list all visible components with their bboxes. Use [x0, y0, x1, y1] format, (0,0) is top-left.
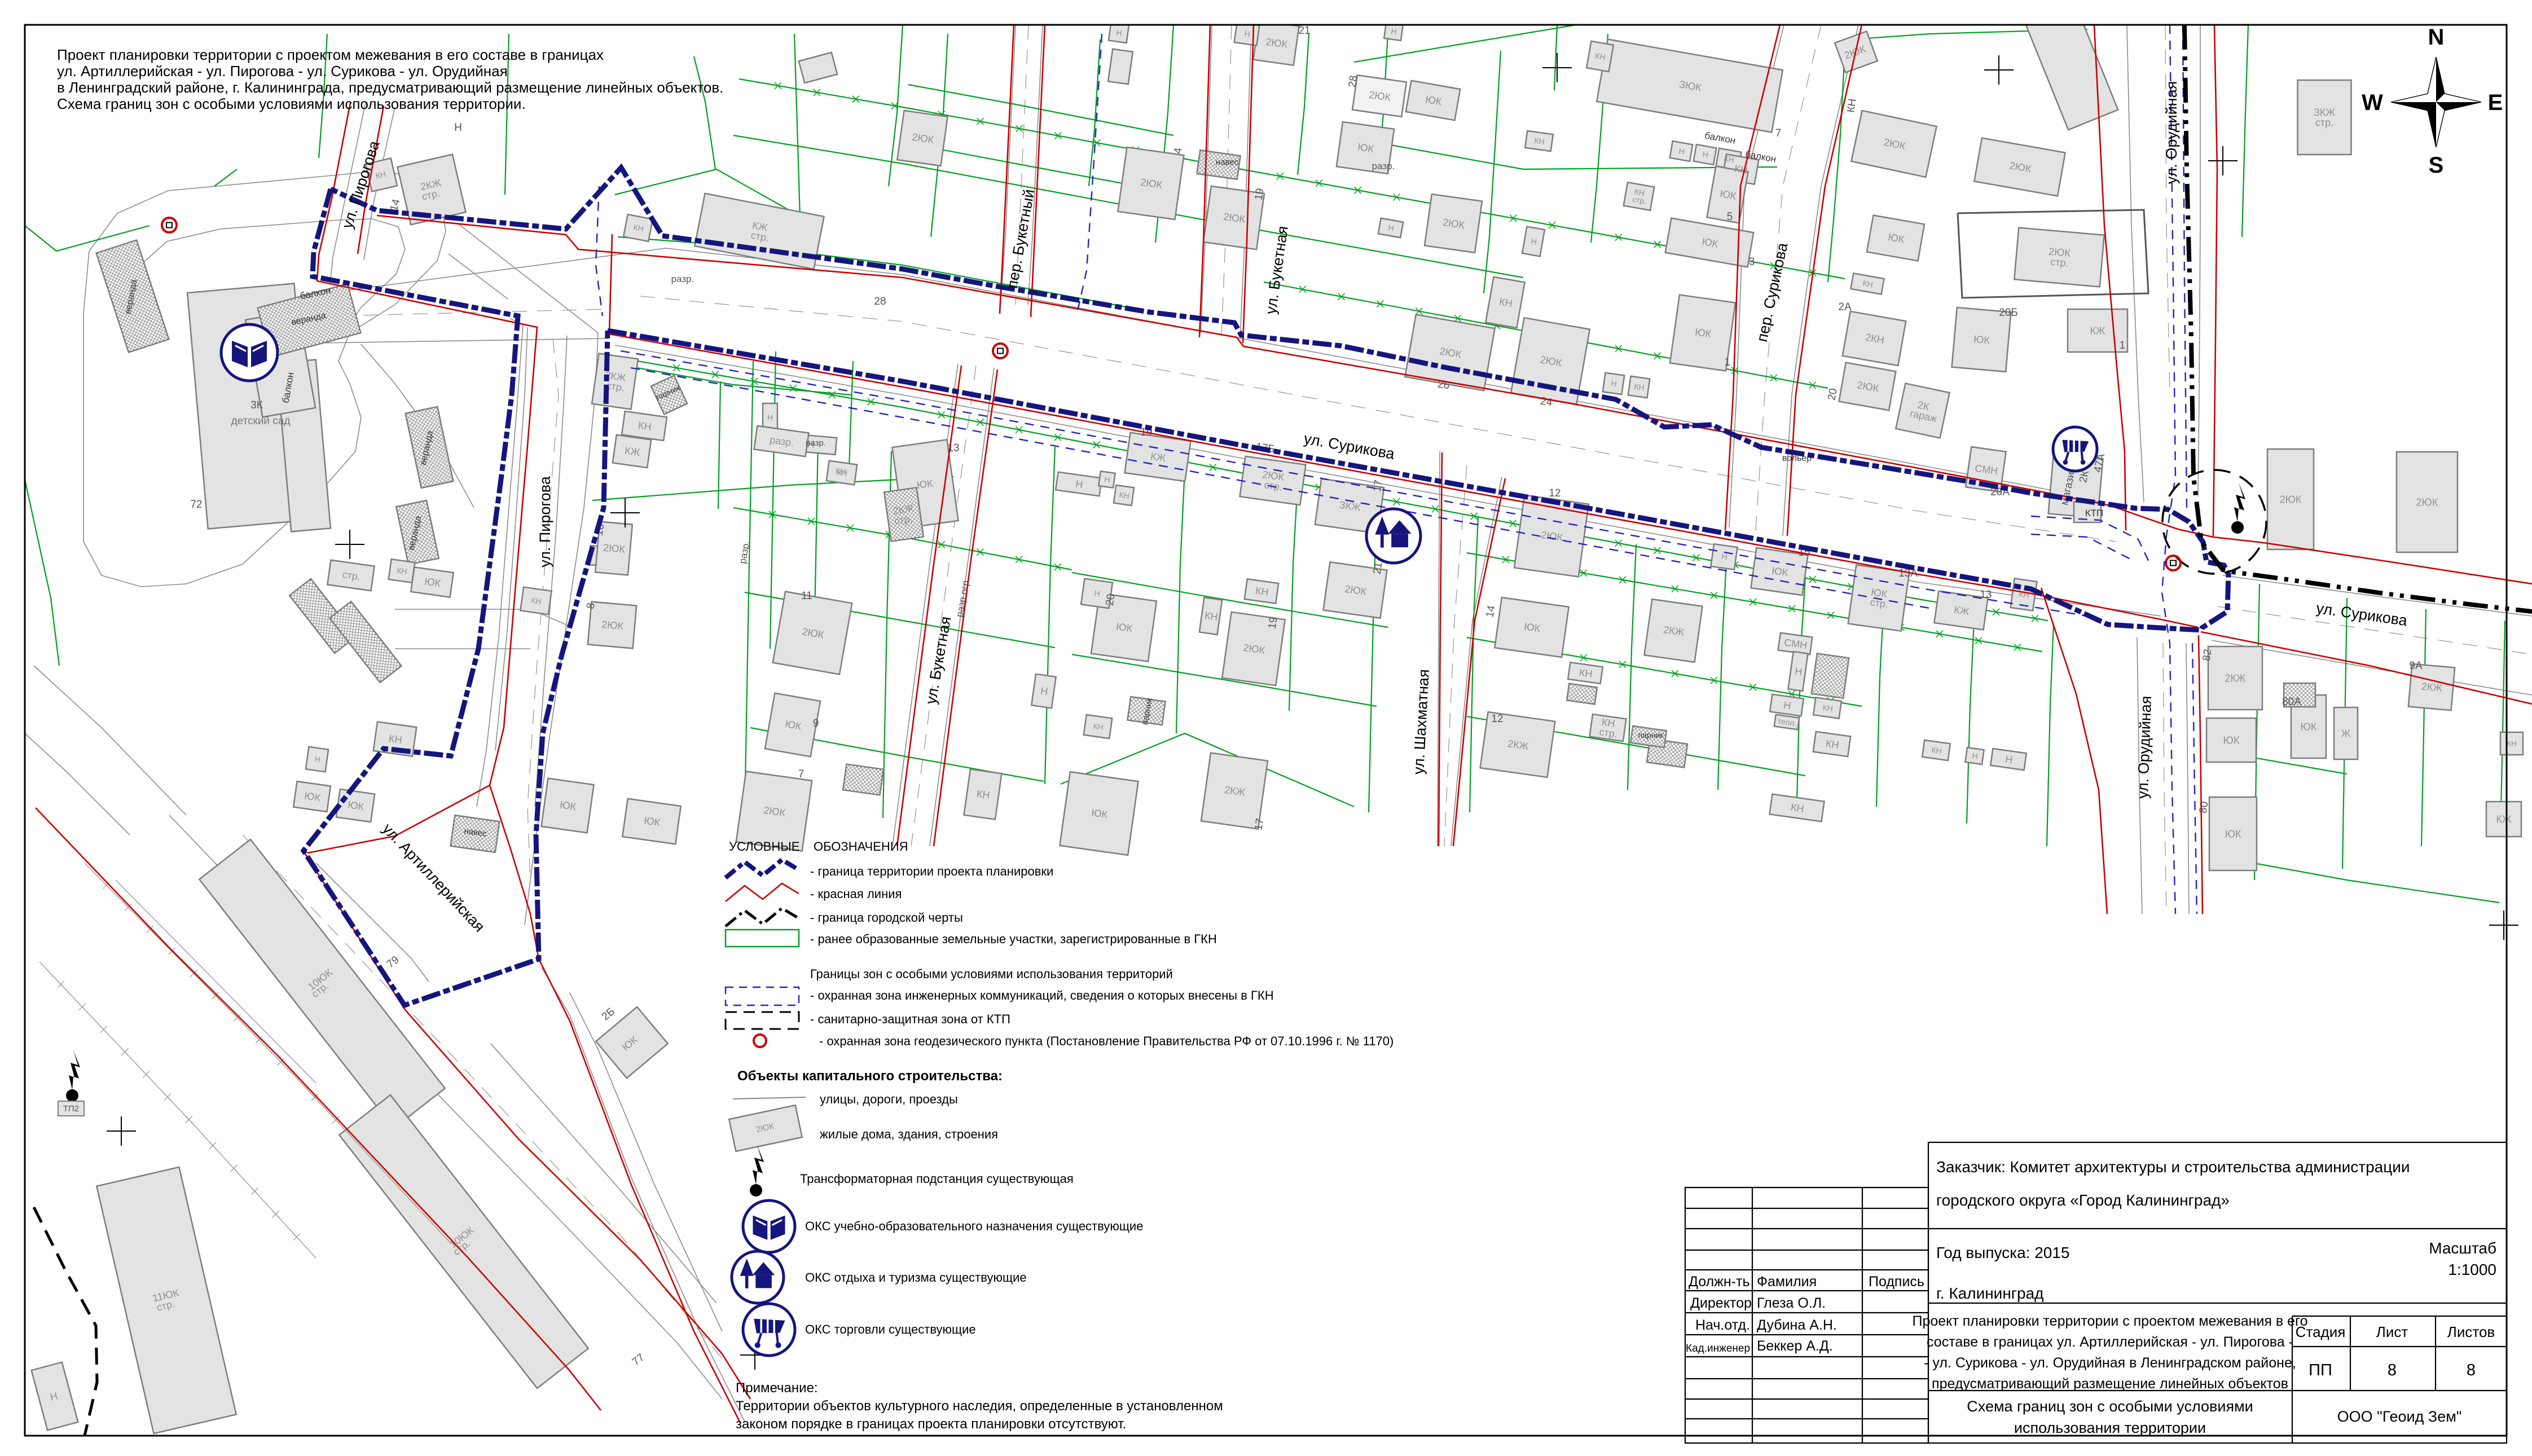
svg-text:Схема границ зон с особыми усл: Схема границ зон с особыми условиями — [1967, 1398, 2253, 1415]
svg-text:20: 20 — [1826, 388, 1839, 401]
svg-text:Трансформаторная подстанция су: Трансформаторная подстанция существующая — [800, 1172, 1074, 1186]
svg-text:КЖ: КЖ — [2090, 325, 2105, 336]
svg-text:улицы, дороги, проезды: улицы, дороги, проезды — [820, 1092, 958, 1106]
svg-text:80А: 80А — [2282, 696, 2301, 708]
svg-text:28: 28 — [1347, 74, 1360, 88]
svg-text:1: 1 — [1725, 357, 1731, 368]
svg-text:- охранная зона инженерных ком: - охранная зона инженерных коммуникаций,… — [810, 988, 1274, 1002]
svg-text:стр.: стр. — [2050, 256, 2069, 269]
svg-text:12: 12 — [1549, 487, 1560, 499]
svg-text:в Ленинградский районе, г. Кал: в Ленинградский районе, г. Калининграда,… — [57, 79, 723, 96]
svg-text:Заказчик: Комитет архитектуры: Заказчик: Комитет архитектуры и строител… — [1936, 1158, 2410, 1176]
svg-text:КТП: КТП — [2085, 508, 2104, 518]
svg-text:Стадия: Стадия — [2296, 1323, 2346, 1340]
svg-text:7: 7 — [1775, 127, 1782, 139]
svg-text:9: 9 — [813, 718, 819, 729]
svg-text:2А: 2А — [1838, 301, 1852, 313]
svg-text:Кад.инженер: Кад.инженер — [1686, 1343, 1750, 1354]
svg-text:2ЮК: 2ЮК — [2416, 496, 2438, 508]
svg-text:ЮК: ЮК — [424, 575, 442, 589]
svg-text:9А: 9А — [2409, 660, 2423, 672]
svg-text:19: 19 — [1267, 616, 1280, 630]
svg-text:- охранная зона геодезического: - охранная зона геодезического пункта (П… — [819, 1034, 1394, 1048]
svg-text:КН: КН — [1093, 722, 1104, 732]
svg-text:КЖ: КЖ — [1150, 451, 1167, 464]
svg-text:КН: КН — [1790, 802, 1805, 815]
svg-text:ЮК: ЮК — [347, 799, 365, 812]
svg-text:14: 14 — [1484, 604, 1497, 618]
svg-text:КН: КН — [1594, 51, 1606, 62]
svg-text:разр.: разр. — [806, 438, 826, 448]
svg-text:городского округа «Город Калин: городского округа «Город Калининград» — [1936, 1191, 2230, 1209]
svg-text:12: 12 — [1491, 713, 1503, 725]
svg-text:Н: Н — [2005, 754, 2014, 766]
svg-text:S: S — [2429, 153, 2444, 178]
svg-text:- граница территории проекта п: - граница территории проекта планировки — [810, 864, 1053, 878]
svg-text:КН: КН — [1825, 738, 1840, 751]
svg-text:1:1000: 1:1000 — [2448, 1261, 2496, 1278]
svg-text:17: 17 — [1253, 817, 1267, 831]
svg-text:2ЮК: 2ЮК — [603, 542, 626, 555]
svg-text:использования территории: использования территории — [2014, 1419, 2206, 1436]
svg-text:Объекты капитального строитель: Объекты капитального строительства: — [737, 1068, 1003, 1084]
svg-text:ЮК: ЮК — [916, 477, 934, 491]
svg-text:стр.: стр. — [2315, 117, 2333, 128]
svg-text:7: 7 — [798, 768, 805, 780]
svg-text:21: 21 — [1371, 561, 1385, 575]
svg-text:ЮК: ЮК — [643, 815, 661, 828]
svg-text:Ж: Ж — [2341, 728, 2351, 739]
svg-text:ЗКЖ: ЗКЖ — [2314, 107, 2335, 118]
svg-text:Директор: Директор — [1690, 1295, 1752, 1311]
svg-text:ЮК: ЮК — [1091, 807, 1109, 820]
svg-text:Должн-ть: Должн-ть — [1689, 1274, 1749, 1290]
svg-text:19: 19 — [1253, 187, 1267, 201]
svg-text:КН: КН — [632, 222, 644, 233]
svg-text:КН: КН — [638, 420, 652, 433]
svg-text:ОБОЗНАЧЕНИЯ: ОБОЗНАЧЕНИЯ — [814, 839, 908, 854]
svg-text:Масштаб: Масштаб — [2429, 1239, 2496, 1257]
svg-text:2ЮК: 2ЮК — [601, 619, 624, 632]
svg-text:УСЛОВНЫЕ: УСЛОВНЫЕ — [729, 839, 799, 854]
svg-text:24: 24 — [1540, 395, 1553, 409]
svg-text:КН: КН — [1634, 382, 1645, 392]
svg-text:ул. Орудийная: ул. Орудийная — [2134, 696, 2155, 799]
svg-text:Дубина А.Н.: Дубина А.Н. — [1757, 1317, 1837, 1333]
svg-text:82: 82 — [2201, 648, 2214, 662]
svg-text:КН: КН — [1579, 667, 1593, 680]
svg-text:Территории объектов культурног: Территории объектов культурного наследия… — [736, 1398, 1223, 1414]
svg-text:ООО "Геоид Зем": ООО "Геоид Зем" — [2337, 1408, 2462, 1425]
svg-text:г. Калининград: г. Калининград — [1936, 1285, 2043, 1302]
svg-text:- красная линия: - красная линия — [810, 887, 902, 901]
svg-text:20: 20 — [1104, 593, 1118, 606]
svg-text:ОКС торговли существующие: ОКС торговли существующие — [805, 1322, 976, 1336]
svg-text:11: 11 — [801, 590, 812, 602]
svg-text:КН: КН — [1723, 154, 1735, 165]
svg-text:Проект планировки территории с: Проект планировки территории с проектом … — [1912, 1313, 2307, 1329]
svg-text:20Б: 20Б — [1999, 307, 2018, 319]
svg-text:КН: КН — [1845, 98, 1858, 113]
svg-text:Н: Н — [767, 413, 773, 422]
svg-text:ПП: ПП — [2309, 1361, 2332, 1379]
svg-text:Фамилия: Фамилия — [1757, 1274, 1817, 1290]
svg-text:ТП2: ТП2 — [63, 1104, 79, 1114]
svg-text:Схема границ зон с особыми усл: Схема границ зон с особыми условиями исп… — [57, 95, 526, 112]
svg-text:жилые дома, здания, строения: жилые дома, здания, строения — [820, 1127, 998, 1141]
svg-text:парник: парник — [1638, 731, 1664, 740]
svg-text:8: 8 — [2467, 1361, 2476, 1379]
svg-text:КН: КН — [976, 788, 991, 801]
svg-text:ЮК: ЮК — [1357, 141, 1375, 155]
svg-text:ЮК: ЮК — [1694, 326, 1712, 340]
svg-text:ОКС отдыха и туризма существую: ОКС отдыха и туризма существующие — [805, 1270, 1027, 1285]
svg-text:КН: КН — [1862, 279, 1874, 289]
svg-text:КН: КН — [1931, 745, 1942, 755]
svg-text:17: 17 — [1371, 479, 1385, 492]
svg-text:Н: Н — [1075, 478, 1084, 491]
svg-text:- граница городской черты: - граница городской черты — [810, 910, 963, 925]
svg-text:ЮК: ЮК — [2301, 721, 2317, 732]
svg-text:2ЮК: 2ЮК — [2280, 494, 2302, 505]
svg-text:Н: Н — [1783, 700, 1792, 712]
svg-text:КН: КН — [837, 468, 848, 478]
svg-text:- ул. Сурикова - ул. Орудийная: - ул. Сурикова - ул. Орудийная в Ленингр… — [1924, 1355, 2296, 1371]
svg-text:КЖ: КЖ — [624, 445, 641, 459]
svg-text:ЮК: ЮК — [304, 790, 322, 803]
svg-text:8: 8 — [2388, 1361, 2397, 1379]
svg-text:80: 80 — [2197, 800, 2211, 814]
svg-text:ЮК: ЮК — [1973, 333, 1990, 346]
svg-text:- ранее образованные земельные: - ранее образованные земельные участки, … — [810, 932, 1217, 946]
svg-text:КН: КН — [388, 733, 403, 746]
svg-text:детский сад: детский сад — [231, 415, 291, 427]
svg-text:Примечание:: Примечание: — [736, 1380, 818, 1396]
svg-text:КН: КН — [1822, 703, 1834, 713]
svg-text:5: 5 — [1727, 211, 1733, 223]
svg-text:Проект планировки территории с: Проект планировки территории с проектом … — [57, 46, 604, 63]
svg-text:3: 3 — [1749, 256, 1755, 268]
svg-text:КЖ: КЖ — [1953, 604, 1970, 618]
svg-text:КН: КН — [1255, 585, 1269, 598]
svg-text:Н: Н — [1040, 685, 1049, 698]
svg-text:Лист: Лист — [2376, 1323, 2408, 1340]
svg-text:21: 21 — [1298, 25, 1310, 37]
svg-text:Год выпуска: 2015: Год выпуска: 2015 — [1936, 1244, 2070, 1261]
svg-text:N: N — [2428, 25, 2445, 50]
svg-text:разр.: разр. — [1372, 161, 1395, 171]
svg-text:ЮК: ЮК — [2225, 828, 2241, 839]
svg-text:28: 28 — [874, 296, 886, 307]
svg-text:W: W — [2362, 90, 2383, 115]
svg-text:предусматривающий размещение л: предусматривающий размещение линейных об… — [1932, 1376, 2288, 1392]
svg-text:навес: навес — [1216, 157, 1239, 167]
svg-text:Глеза О.Л.: Глеза О.Л. — [1757, 1295, 1826, 1311]
svg-text:КН: КН — [1119, 490, 1130, 500]
svg-text:ул. Пирогова: ул. Пирогова — [537, 476, 553, 567]
svg-text:ЮК: ЮК — [1115, 621, 1133, 634]
svg-text:разр.: разр. — [671, 274, 694, 284]
svg-text:Нач.отд.: Нач.отд. — [1695, 1317, 1750, 1333]
svg-text:72: 72 — [190, 499, 202, 511]
svg-text:Н: Н — [1794, 666, 1803, 678]
svg-text:E: E — [2488, 90, 2503, 115]
svg-text:законом порядке в границах про: законом порядке в границах проекта плани… — [736, 1417, 1126, 1432]
svg-text:ЮК: ЮК — [1523, 621, 1541, 634]
svg-text:ОКС учебно-образовательного на: ОКС учебно-образовательного назначения с… — [805, 1219, 1143, 1233]
svg-text:ул. Орудийная: ул. Орудийная — [2163, 81, 2180, 184]
svg-text:КН: КН — [1498, 296, 1514, 310]
svg-text:ЮК: ЮК — [1771, 565, 1789, 578]
svg-text:КН: КН — [531, 596, 542, 606]
svg-text:КН: КН — [1204, 610, 1219, 623]
svg-text:2КЖ: 2КЖ — [2225, 672, 2245, 684]
svg-text:Листов: Листов — [2447, 1323, 2495, 1340]
svg-text:ул. Артиллерийская - ул. Пирог: ул. Артиллерийская - ул. Пирогова - ул. … — [57, 63, 508, 80]
svg-text:составе в границах ул. Артилле: составе в границах ул. Артиллерийская - … — [1927, 1334, 2293, 1350]
svg-text:КН: КН — [1534, 136, 1545, 146]
svg-text:ЮК: ЮК — [559, 799, 577, 812]
svg-text:Границы зон с особыми условиям: Границы зон с особыми условиями использо… — [810, 967, 1173, 981]
svg-text:КН: КН — [2507, 739, 2517, 748]
svg-text:Подпись: Подпись — [1869, 1274, 1924, 1290]
svg-text:КЖ: КЖ — [2496, 813, 2511, 825]
svg-text:1: 1 — [2120, 340, 2126, 351]
svg-text:13: 13 — [1980, 589, 1992, 601]
svg-text:Беккер А.Д.: Беккер А.Д. — [1757, 1338, 1833, 1354]
svg-text:ЮК: ЮК — [2223, 734, 2240, 746]
svg-text:- санитарно-защитная зона от К: - санитарно-защитная зона от КТП — [810, 1012, 1010, 1026]
svg-text:КН: КН — [397, 566, 408, 576]
svg-text:3К: 3К — [250, 399, 263, 411]
svg-text:Н: Н — [454, 122, 462, 134]
